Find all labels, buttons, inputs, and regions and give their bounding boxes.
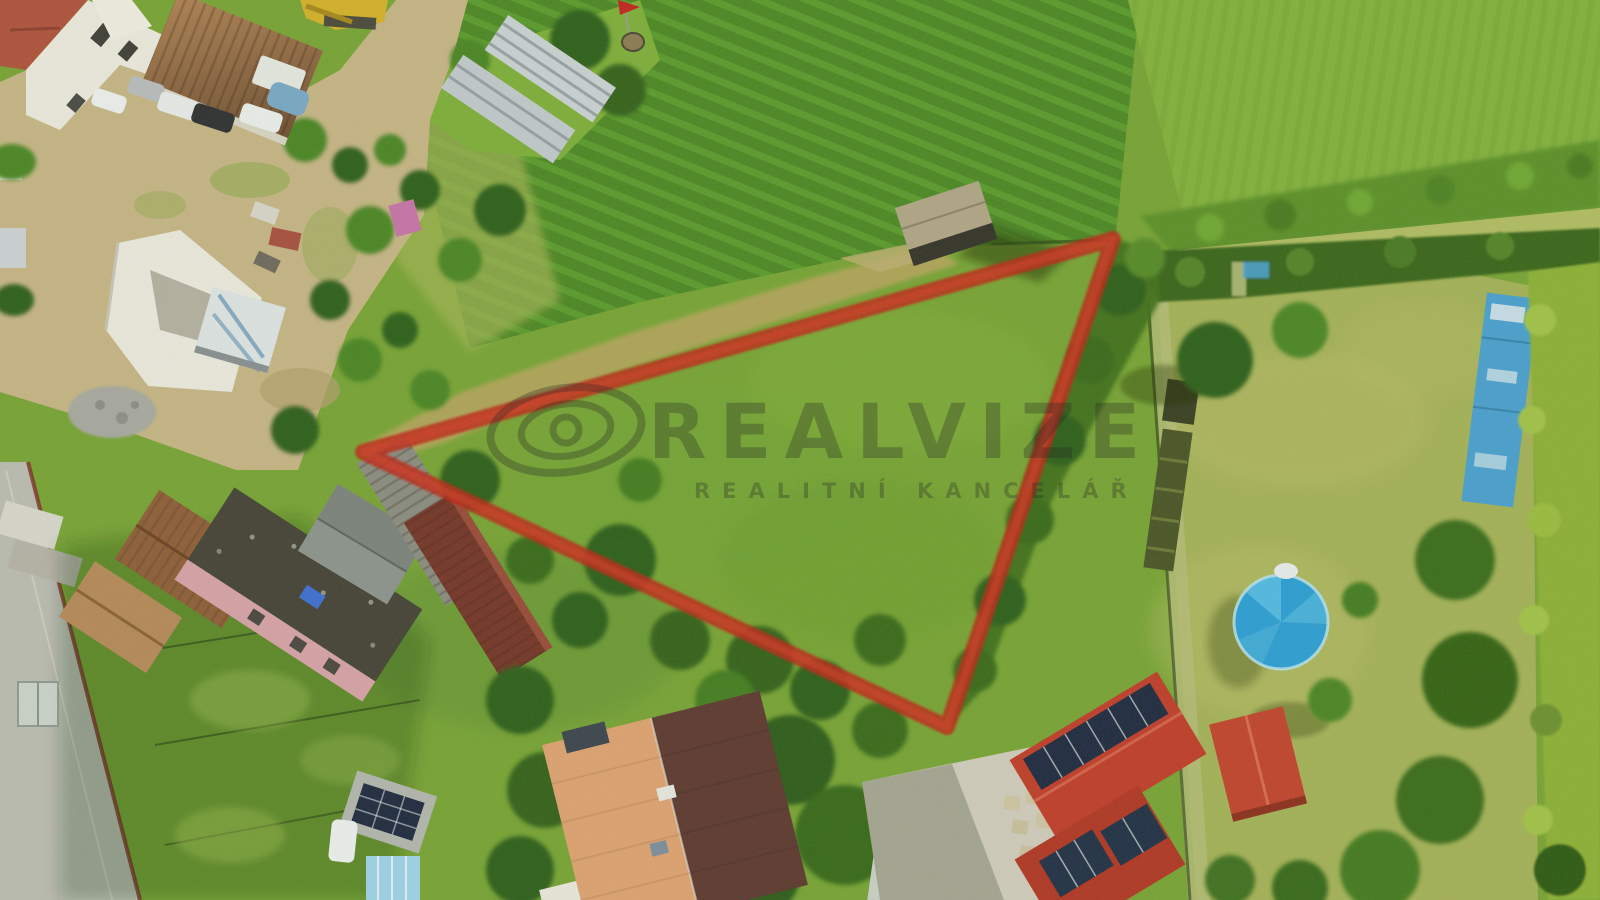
aerial-photo-canvas: REALVIZE REALITNÍ KANCELÁŘ xyxy=(0,0,1600,900)
aerial-photo: REALVIZE REALITNÍ KANCELÁŘ xyxy=(0,0,1600,900)
watermark-brand: REALVIZE xyxy=(648,387,1153,476)
watermark-tagline: REALITNÍ KANCELÁŘ xyxy=(694,478,1139,503)
